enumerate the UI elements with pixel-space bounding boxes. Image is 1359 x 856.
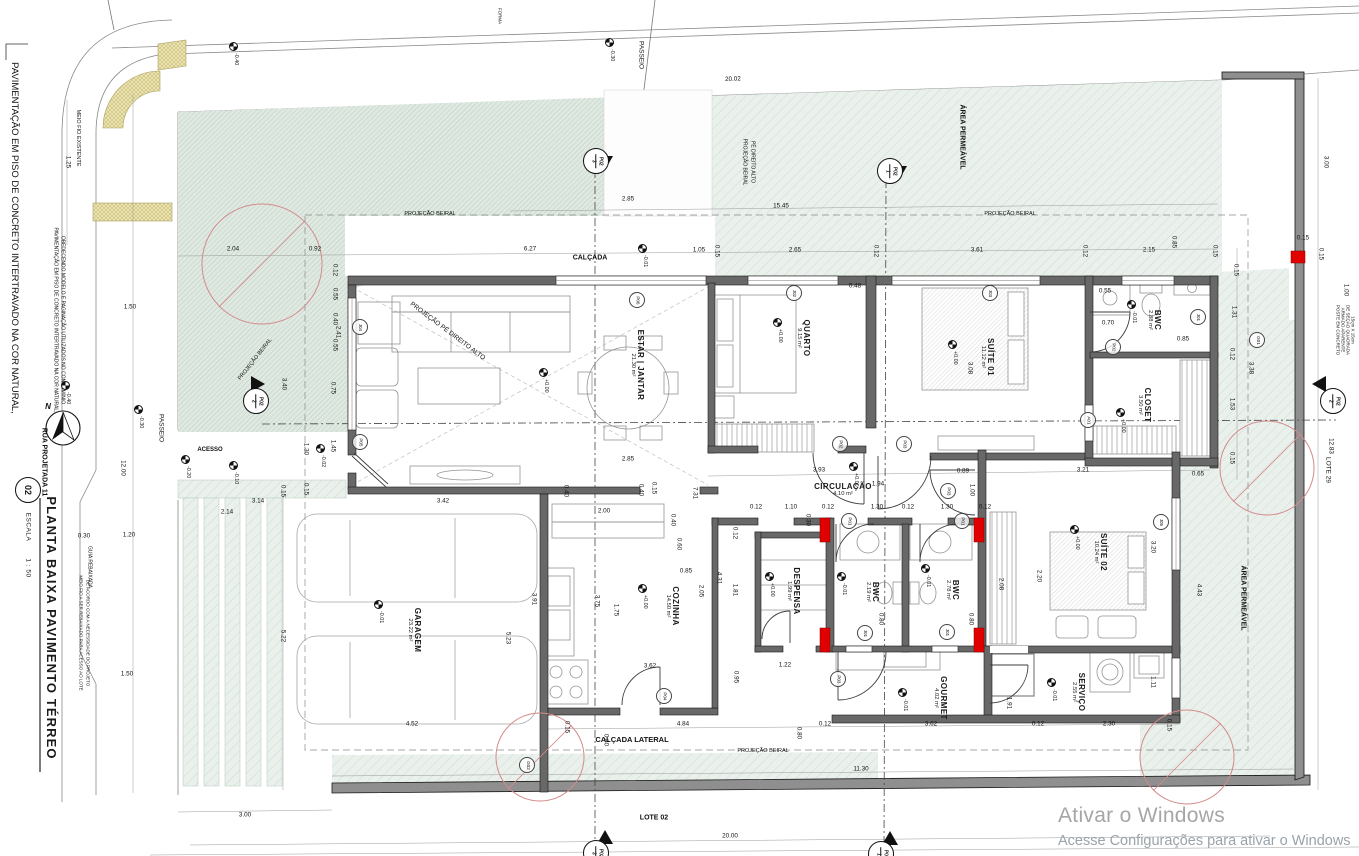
level-marker: +0.00: [765, 572, 774, 597]
dimension-text: 0.12: [979, 505, 991, 512]
dimension-text: 3.62: [644, 664, 656, 671]
annotation-label: ÁREA PERMEÁVEL: [958, 104, 965, 169]
annotation-label: ACESSO: [197, 447, 222, 453]
dimension-text: 2.85: [622, 457, 634, 464]
dimension-text: 4.31: [715, 572, 722, 584]
scale-value: 1 : 50: [24, 558, 31, 577]
level-marker: -0.02: [316, 444, 325, 467]
level-marker: -0.01: [1127, 300, 1136, 323]
dimension-text: 0.80: [877, 613, 884, 625]
dimension-text: 2.30: [1103, 722, 1115, 729]
level-marker: +0.00: [1070, 525, 1079, 550]
level-marker: +0.00: [773, 318, 782, 343]
section-marker: P023: [583, 840, 607, 856]
dimension-text: 0.15: [713, 245, 720, 257]
dimension-text: 3.40: [280, 378, 287, 390]
dimension-text: 0.89: [957, 469, 969, 476]
drawing-number: 02: [23, 485, 33, 495]
dimension-text: 1.30: [871, 505, 883, 512]
dimension-text: 2.14: [221, 510, 233, 517]
dimension-text: 4.43: [1195, 584, 1202, 596]
level-marker: -0.40: [229, 42, 238, 65]
dimension-text: 1.45: [329, 440, 336, 452]
dimension-text: 0.85: [1170, 236, 1177, 248]
watermark-title: Ativar o Windows: [1058, 804, 1351, 828]
annotation-label: PÉ DIREITO ALTO: [749, 141, 754, 183]
element-tag: J05: [1153, 514, 1169, 530]
dimension-text: 1.20: [123, 533, 135, 540]
section-marker: P023: [583, 148, 607, 172]
dimension-text: 1.50: [124, 305, 136, 312]
level-marker: +0.00: [539, 368, 548, 393]
level-symbol-icon: [898, 688, 907, 697]
section-marker: P022: [1320, 388, 1344, 412]
annotation-label: RUA PROJETADA 11: [40, 428, 47, 497]
dimension-text: 3.93: [813, 468, 825, 475]
tree-diameter-label: ø 1.50: [0, 0, 457, 507]
level-symbol-icon: [1116, 408, 1125, 417]
dimension-text: 0.12: [822, 505, 834, 512]
level-marker: +0.00: [638, 584, 647, 609]
dimension-text: 0.30: [78, 534, 90, 541]
annotation-label: PAVIMENTAÇÃO EM PISO DE CONCRETO INTERTR…: [52, 227, 57, 412]
dimension-text: 0.95: [732, 671, 739, 683]
annotation-label: DE ACORDO COM A NECESSIDADE DO PROJETO: [85, 580, 90, 686]
dimension-text: 0.40: [562, 485, 569, 497]
element-tag: J04: [352, 319, 368, 335]
dimension-text: 0.12: [1032, 722, 1044, 729]
dimension-text: 0.48: [849, 284, 861, 291]
dimension-text: 0.15: [302, 483, 309, 495]
element-tag: J01: [1190, 309, 1206, 325]
room-label: CLOSET3.50 m²: [1137, 388, 1151, 423]
level-symbol-icon: [539, 368, 548, 377]
dimension-text: 2.41: [334, 326, 341, 338]
dimension-text: 0.12: [819, 722, 831, 729]
dimension-text: 2.04: [227, 247, 239, 254]
dimension-text: 1.30: [941, 505, 953, 512]
level-marker: -0.01: [638, 244, 647, 267]
annotation-label: OBEDECENDO MODELO E PAGINAÇÃO UTILIZADOS…: [59, 236, 64, 404]
dimension-text: 0.15: [1232, 264, 1239, 276]
dimension-text: 1.53: [1228, 398, 1235, 410]
dimension-text: 1.75: [612, 604, 619, 616]
dimension-text: 1.31: [1230, 306, 1237, 318]
dimension-text: 0.12: [1081, 245, 1088, 257]
room-label: GOURMET4.02 m²: [933, 676, 947, 720]
dimension-text: 1.94: [872, 482, 884, 489]
level-symbol-icon: [765, 572, 774, 581]
dimension-text: 3.00: [1322, 156, 1329, 168]
level-symbol-icon: [374, 600, 383, 609]
dimension-text: 1.25: [64, 156, 71, 168]
dimension-text: 0.60: [675, 538, 682, 550]
dimension-text: 0.12: [750, 505, 762, 512]
dimension-text: 0.55: [1099, 289, 1111, 296]
level-symbol-icon: [181, 455, 190, 464]
annotation-label: POSTE EM CONCRETO: [1335, 305, 1340, 355]
room-label: SERVIÇO2.55 m²: [1071, 673, 1085, 712]
annotation-label: ÁREA PERMEÁVEL: [1239, 565, 1246, 630]
dimension-text: 15.45: [773, 204, 789, 211]
dimension-text: 0.80: [967, 613, 974, 625]
windows-activation-watermark: Ativar o Windows Acesse Configurações pa…: [1058, 804, 1351, 849]
drawing-number-badge: 02: [15, 477, 41, 503]
level-symbol-icon: [134, 405, 143, 414]
section-marker: P021: [877, 158, 901, 182]
dimension-text: 0.12: [1228, 348, 1235, 360]
level-symbol-icon: [638, 244, 647, 253]
element-tag: P03: [830, 671, 846, 687]
dimension-text: 1.00: [1342, 284, 1349, 296]
dimension-text: 2.08: [997, 578, 1004, 590]
annotation-label: PAVIMENTAÇÃO EM PISO DE CONCRETO INTERTR…: [9, 62, 19, 414]
dimension-text: 0.85: [1177, 337, 1189, 344]
annotation-label: PROJEÇÃO BEIRAL: [737, 749, 788, 755]
dimension-text: 0.15: [563, 721, 570, 733]
room-label: DESPENSA1.99 m²: [786, 567, 800, 614]
annotation-label: PROJEÇÃO BEIRAL: [741, 139, 746, 186]
dimension-text: 5.22: [279, 630, 286, 642]
dimension-text: 0.80: [795, 727, 802, 739]
level-symbol-icon: [316, 444, 325, 453]
dimension-text: 0.85: [680, 569, 692, 576]
dimension-text: 2.65: [789, 248, 801, 255]
level-marker: +0.00: [849, 462, 858, 487]
level-marker: -0.30: [605, 38, 614, 61]
level-marker: +0.00: [948, 340, 957, 365]
level-marker: -0.01: [921, 564, 930, 587]
level-marker: -0.30: [134, 405, 143, 428]
dimension-text: 3.00: [239, 813, 251, 820]
annotation-label: N: [45, 403, 51, 411]
dimension-text: 3.91: [530, 593, 537, 605]
dimension-text: 1.22: [779, 663, 791, 670]
dimension-text: 20.00: [722, 834, 738, 841]
tree-diameter-label: ø 1.50: [0, 0, 457, 513]
dimension-text: 1.30: [302, 443, 309, 455]
tree-diameter-label: ø 1.50: [0, 0, 457, 519]
annotation-label: PROJEÇÃO BEIRAL: [404, 212, 455, 218]
floor-plan-canvas: ESTAR | JANTAR21.30 m²QUARTO9.15 m²SUÍTE…: [0, 0, 1359, 856]
level-marker: -0.01: [374, 600, 383, 623]
level-marker: -0.40: [61, 381, 70, 404]
element-tag: P03: [896, 436, 912, 452]
section-marker: P021: [868, 841, 892, 856]
annotations-layer: ESTAR | JANTAR21.30 m²QUARTO9.15 m²SUÍTE…: [0, 0, 1359, 856]
element-tag: P02: [832, 436, 848, 452]
dimension-text: 0.15: [279, 485, 286, 497]
level-symbol-icon: [638, 584, 647, 593]
scale-label: ESCALA: [24, 513, 31, 542]
level-symbol-icon: [1127, 300, 1136, 309]
element-tag: J01: [939, 624, 955, 640]
level-marker: -0.01: [1047, 678, 1056, 701]
dimension-text: 1.11: [1149, 676, 1156, 688]
level-symbol-icon: [605, 38, 614, 47]
annotation-label: CALÇADA: [573, 254, 608, 261]
element-tag: G02: [519, 757, 535, 773]
level-marker: -0.01: [898, 688, 907, 711]
dimension-text: 1.00: [968, 484, 975, 496]
dimension-text: 0.70: [1102, 321, 1114, 328]
dimension-text: 3.75: [593, 595, 600, 607]
dimension-text: 2.05: [697, 585, 704, 597]
room-label: SUÍTE 0111.12 m²: [980, 338, 994, 376]
annotation-label: LOTE 29: [1324, 457, 1331, 483]
annotation-label: DE SEÇÃO QUADRADA: [1345, 305, 1350, 355]
level-symbol-icon: [229, 461, 238, 470]
dimension-text: 0.12: [872, 245, 879, 257]
dimension-text: 0.40: [331, 313, 338, 325]
element-tag: J03: [982, 285, 998, 301]
annotation-label: MEIO FIO EXISTENTE: [74, 110, 80, 167]
element-tag: J02: [786, 285, 802, 301]
dimension-text: 6.27: [524, 247, 536, 254]
dimension-text: 0.12: [902, 505, 914, 512]
dimension-text: 0.55: [331, 339, 338, 351]
dimension-text: 12.83: [1327, 438, 1334, 454]
dimension-text: 0.15: [1297, 236, 1309, 243]
section-direction-icon: [1312, 376, 1326, 392]
dimension-text: 5.23: [504, 632, 511, 644]
element-tag: P06: [629, 292, 645, 308]
element-tag: P01: [841, 513, 857, 529]
watermark-subtitle[interactable]: Acesse Configurações para ativar o Windo…: [1058, 833, 1351, 849]
level-marker: +0.00: [1116, 408, 1125, 433]
dimension-text: 1.10: [785, 505, 797, 512]
dimension-text: 0.15: [1211, 245, 1218, 257]
room-label: COZINHA14.50 m²: [665, 586, 679, 625]
element-tag: P05: [352, 434, 368, 450]
dimension-text: 0.12: [331, 264, 338, 276]
annotation-label: ARMADO APARENTE: [1340, 308, 1345, 353]
level-marker: -0.01: [837, 572, 846, 595]
element-tag: P02: [1105, 339, 1121, 355]
room-label: CIRCULAÇÃO4.10 m²: [814, 483, 872, 497]
element-tag: P01: [954, 513, 970, 529]
level-symbol-icon: [229, 42, 238, 51]
dimension-text: 3.21: [1077, 468, 1089, 475]
dimension-text: 11.30: [853, 767, 868, 774]
dimension-text: 0.55: [331, 288, 338, 300]
element-tag: P04: [656, 688, 672, 704]
level-symbol-icon: [849, 462, 858, 471]
dimension-text: 0.15: [1228, 452, 1235, 464]
room-label: BWC2.78 m²: [945, 580, 959, 600]
element-tag: A01: [1080, 412, 1096, 428]
dimension-text: 2.00: [598, 509, 610, 516]
level-symbol-icon: [1070, 525, 1079, 534]
dimension-text: 1.50: [121, 672, 133, 679]
dimension-text: 0.30: [804, 514, 811, 526]
dimension-text: 3.38: [1247, 362, 1254, 374]
room-label: QUARTO9.15 m²: [796, 320, 810, 357]
tree-diameter-label: ø 1.50: [0, 0, 457, 525]
level-symbol-icon: [1047, 678, 1056, 687]
dimension-text: 0.15: [1317, 248, 1324, 260]
annotation-label: PROJEÇÃO BEIRAL: [984, 212, 1035, 218]
dimension-text: 2.15: [1143, 248, 1155, 255]
level-marker: -0.20: [181, 455, 190, 478]
dimension-text: 2.20: [1035, 570, 1042, 582]
room-label: SUÍTE 0210.24 m²: [1093, 533, 1107, 571]
dimension-text: 20.02: [725, 76, 741, 83]
level-symbol-icon: [837, 572, 846, 581]
annotation-label: CALÇADA LATERAL: [595, 736, 668, 744]
dimension-text: 7.31: [691, 487, 698, 499]
dimension-text: 3.14: [252, 499, 264, 506]
dimension-text: 3.61: [971, 248, 983, 255]
dimension-text: 1.91: [1005, 697, 1012, 709]
dimension-text: 0.15: [1165, 719, 1172, 731]
dimension-text: 0.15: [650, 482, 657, 494]
element-tag: P03: [940, 483, 956, 499]
dimension-text: 4.52: [406, 722, 418, 729]
level-symbol-icon: [773, 318, 782, 327]
level-symbol-icon: [948, 340, 957, 349]
dimension-text: 2.85: [622, 197, 634, 204]
dimension-text: 1.81: [731, 584, 738, 596]
element-tag: J01: [857, 625, 873, 641]
annotation-label: LOTE 02: [640, 814, 668, 821]
dimension-text: 4.84: [677, 722, 689, 729]
dimension-text: 3.62: [925, 722, 937, 729]
annotation-label: PASSEIO: [637, 41, 644, 69]
room-label: BWC2.88 m²: [1147, 310, 1161, 330]
annotation-label: MEIO FIO A SER REBAIXADO PARA ACESSO AO …: [78, 575, 83, 690]
annotation-label: FORMA: [497, 8, 502, 24]
element-tag: G01: [1249, 332, 1265, 348]
annotation-label: 15cm X 15cm: [1350, 316, 1355, 344]
dimension-text: 0.12: [731, 527, 738, 539]
page-title: PLANTA BAIXA PAVIMENTO TÉRREO: [44, 496, 58, 759]
level-symbol-icon: [921, 564, 930, 573]
dimension-text: 0.40: [637, 484, 644, 496]
room-label: GARAGEM23.22 m²: [407, 608, 421, 653]
level-symbol-icon: [61, 381, 70, 390]
dimension-text: 1.05: [693, 248, 705, 255]
level-marker: -0.10: [229, 461, 238, 484]
dimension-text: 0.65: [1192, 472, 1204, 479]
section-marker: P022: [243, 388, 267, 412]
dimension-text: 12.00: [119, 460, 126, 476]
annotation-label: PASSEIO: [157, 414, 164, 442]
dimension-text: 0.40: [669, 514, 676, 526]
room-label: ESTAR | JANTAR21.30 m²: [630, 330, 644, 401]
annotation-label: PROJEÇÃO PÉ DIREITO ALTO: [408, 302, 486, 363]
dimension-text: 3.20: [1149, 541, 1156, 553]
room-label: BWC2.19 m²: [865, 582, 879, 602]
dimension-text: 0.92: [309, 247, 321, 254]
dimension-text: 3.08: [966, 362, 973, 374]
dimension-text: 3.42: [437, 499, 449, 506]
dimension-text: 0.75: [329, 382, 336, 394]
